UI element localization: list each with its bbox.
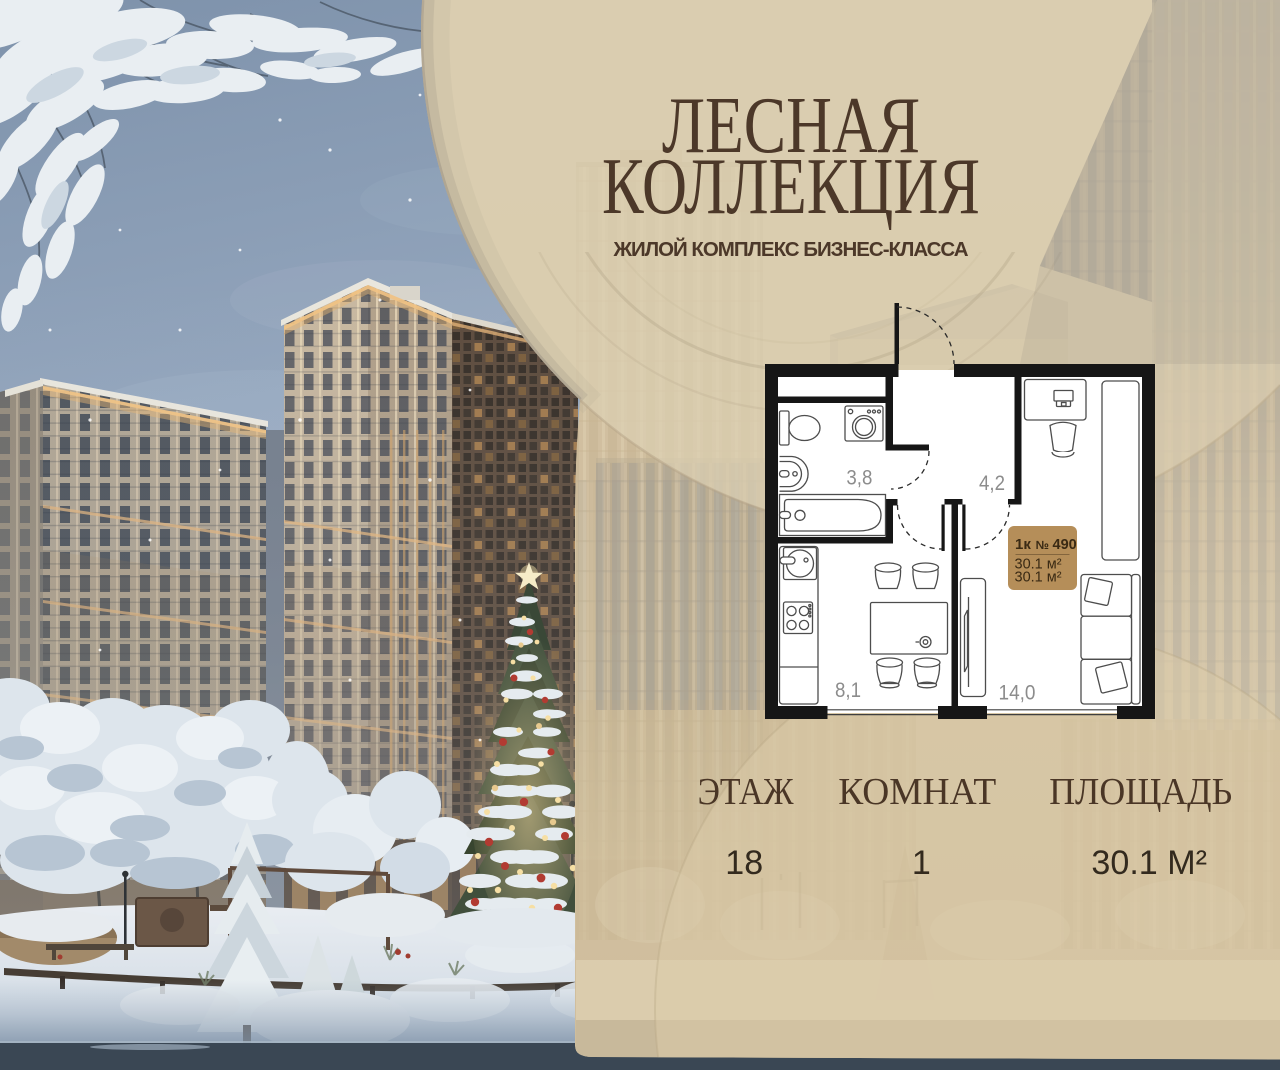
svg-text:4,2: 4,2 [979,472,1005,495]
svg-text:КОЛЛЕКЦИЯ: КОЛЛЕКЦИЯ [602,143,980,231]
svg-text:30.1 М²: 30.1 М² [1091,844,1207,882]
svg-text:№: № [1036,538,1049,552]
svg-text:490: 490 [1053,537,1077,553]
svg-text:14,0: 14,0 [999,682,1036,705]
svg-text:КОМНАТ: КОМНАТ [838,771,996,813]
svg-text:3,8: 3,8 [846,467,872,490]
svg-text:ЭТАЖ: ЭТАЖ [698,771,795,813]
svg-text:ПЛОЩАДЬ: ПЛОЩАДЬ [1049,771,1232,813]
svg-text:30.1 м²: 30.1 м² [1015,570,1062,586]
svg-text:ЖИЛОЙ КОМПЛЕКС БИЗНЕС-КЛАССА: ЖИЛОЙ КОМПЛЕКС БИЗНЕС-КЛАССА [613,237,969,261]
svg-text:1к: 1к [1015,536,1031,553]
svg-text:8,1: 8,1 [835,679,861,702]
svg-text:18: 18 [725,844,763,882]
svg-text:1: 1 [912,844,931,882]
